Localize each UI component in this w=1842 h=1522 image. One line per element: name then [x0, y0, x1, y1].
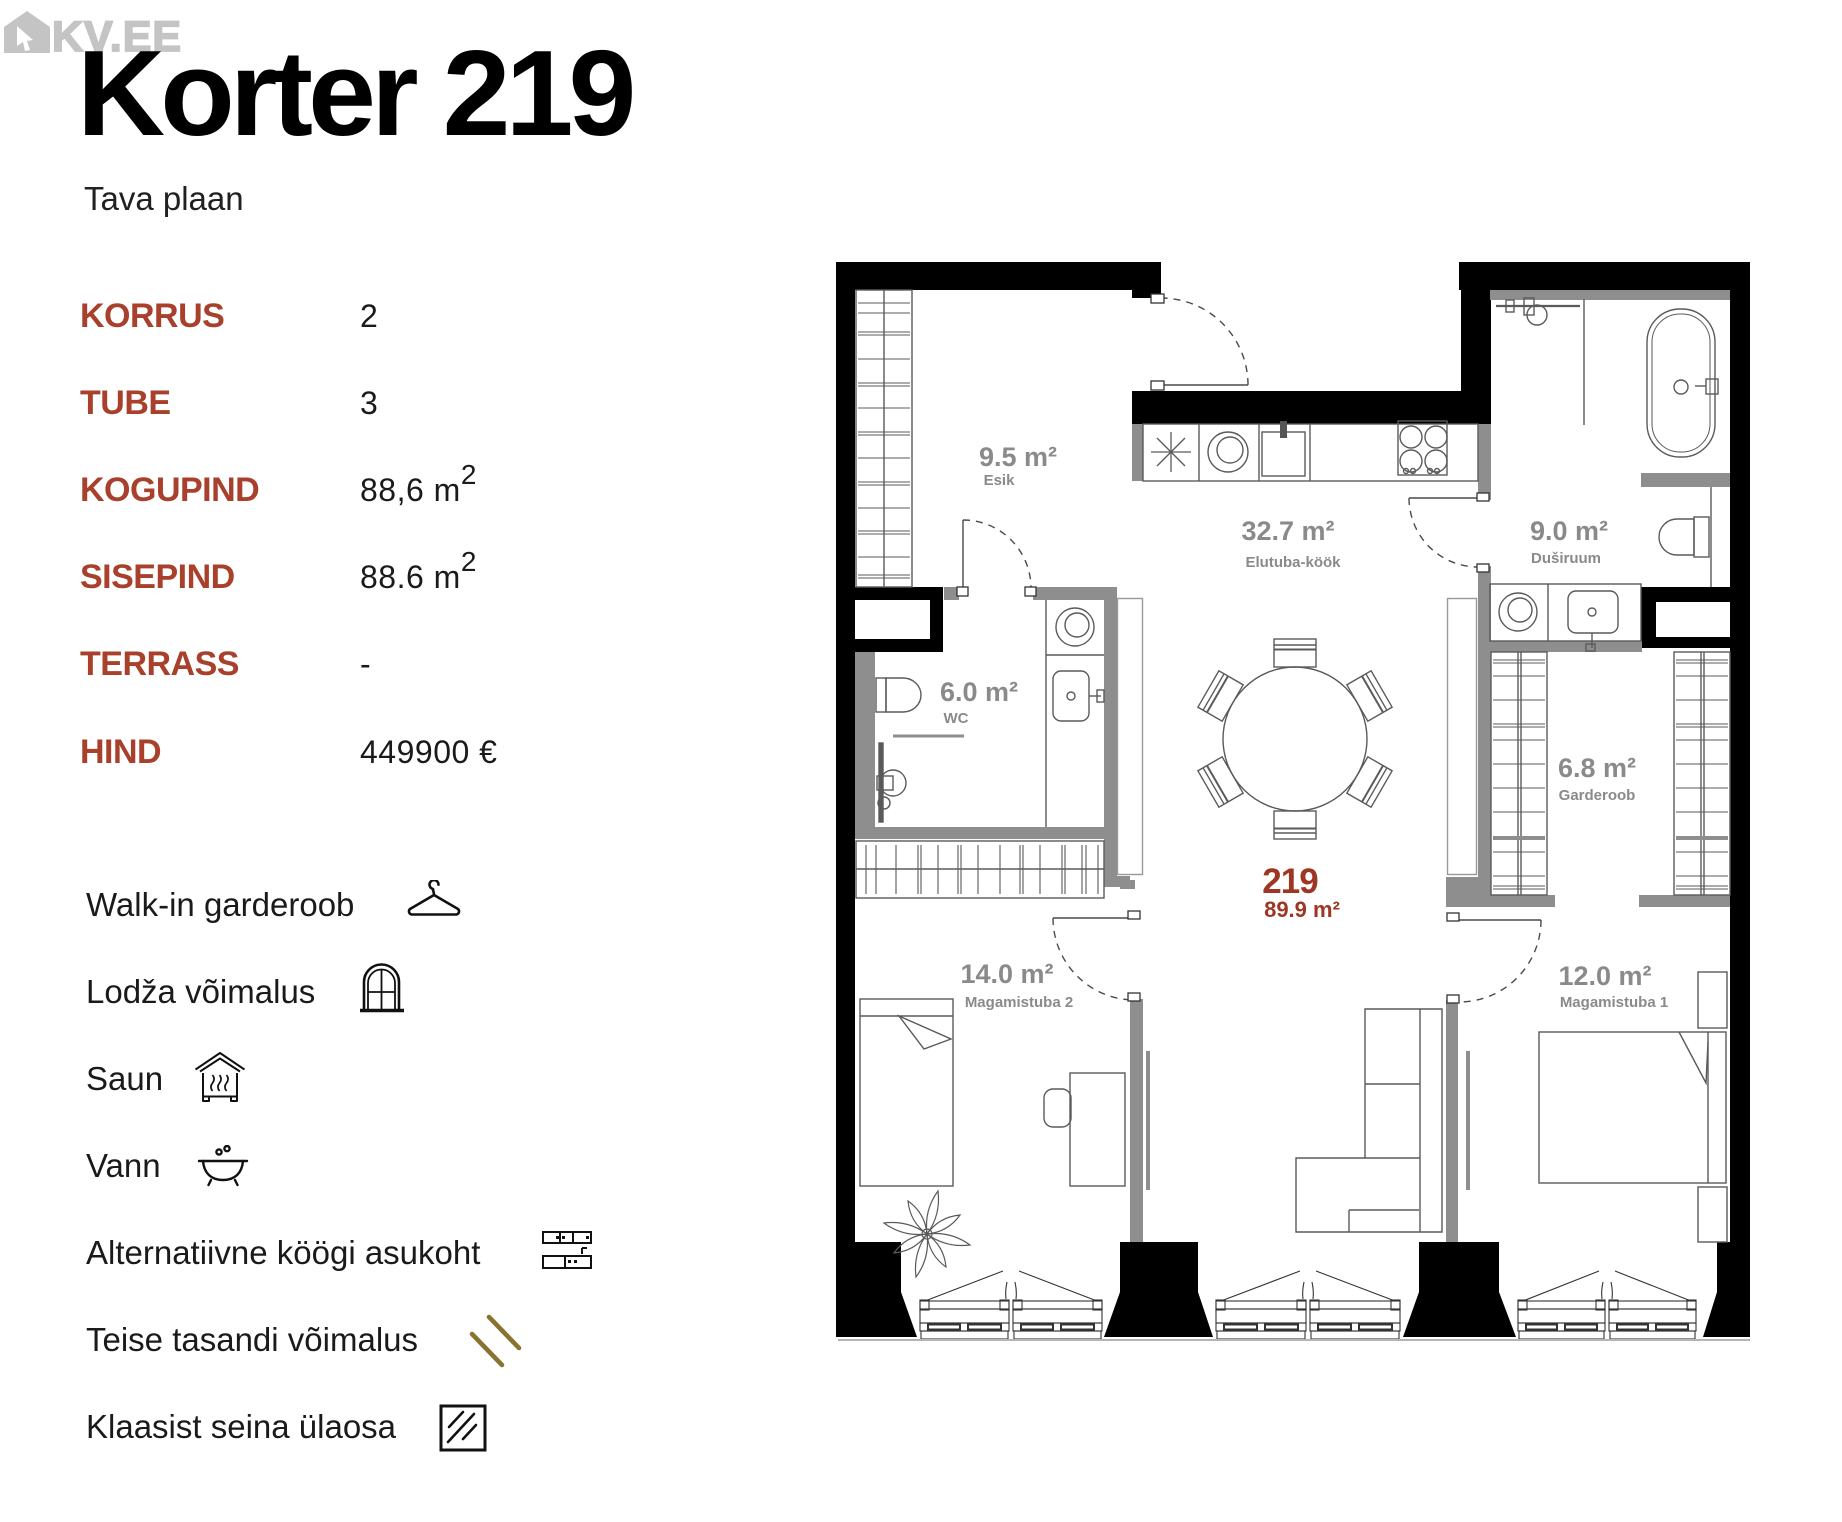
svg-text:32.7 m²: 32.7 m² — [1241, 516, 1334, 546]
svg-text:6.8 m²: 6.8 m² — [1558, 753, 1636, 783]
svg-text:89.9 m²: 89.9 m² — [1264, 897, 1340, 922]
svg-text:6.0 m²: 6.0 m² — [940, 677, 1018, 707]
svg-text:9.0 m²: 9.0 m² — [1530, 516, 1608, 546]
svg-text:Elutuba-köök: Elutuba-köök — [1245, 554, 1341, 571]
svg-text:Garderoob: Garderoob — [1559, 787, 1636, 804]
svg-text:Magamistuba 1: Magamistuba 1 — [1560, 994, 1668, 1011]
svg-text:Duširuum: Duširuum — [1531, 550, 1601, 567]
svg-text:Magamistuba 2: Magamistuba 2 — [965, 994, 1073, 1011]
svg-text:219: 219 — [1262, 862, 1318, 901]
svg-text:Esik: Esik — [984, 472, 1016, 489]
svg-text:WC: WC — [944, 710, 969, 727]
svg-text:9.5 m²: 9.5 m² — [979, 442, 1057, 472]
svg-text:14.0 m²: 14.0 m² — [960, 959, 1053, 989]
svg-text:12.0 m²: 12.0 m² — [1558, 961, 1651, 991]
